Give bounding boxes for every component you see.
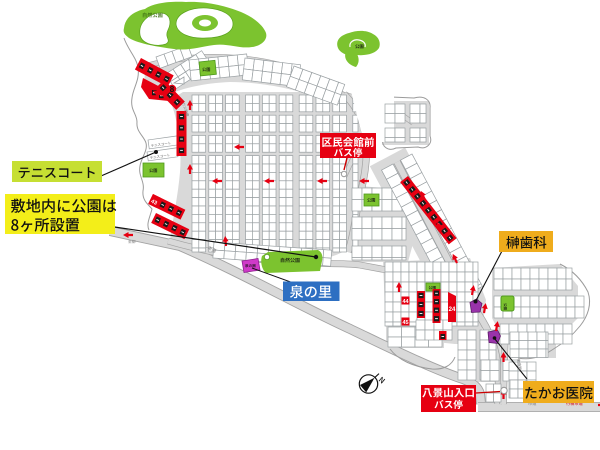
svg-text:8: 8 — [170, 85, 175, 94]
svg-text:45: 45 — [402, 320, 408, 326]
svg-text:24: 24 — [449, 307, 456, 313]
svg-text:44: 44 — [402, 299, 409, 305]
